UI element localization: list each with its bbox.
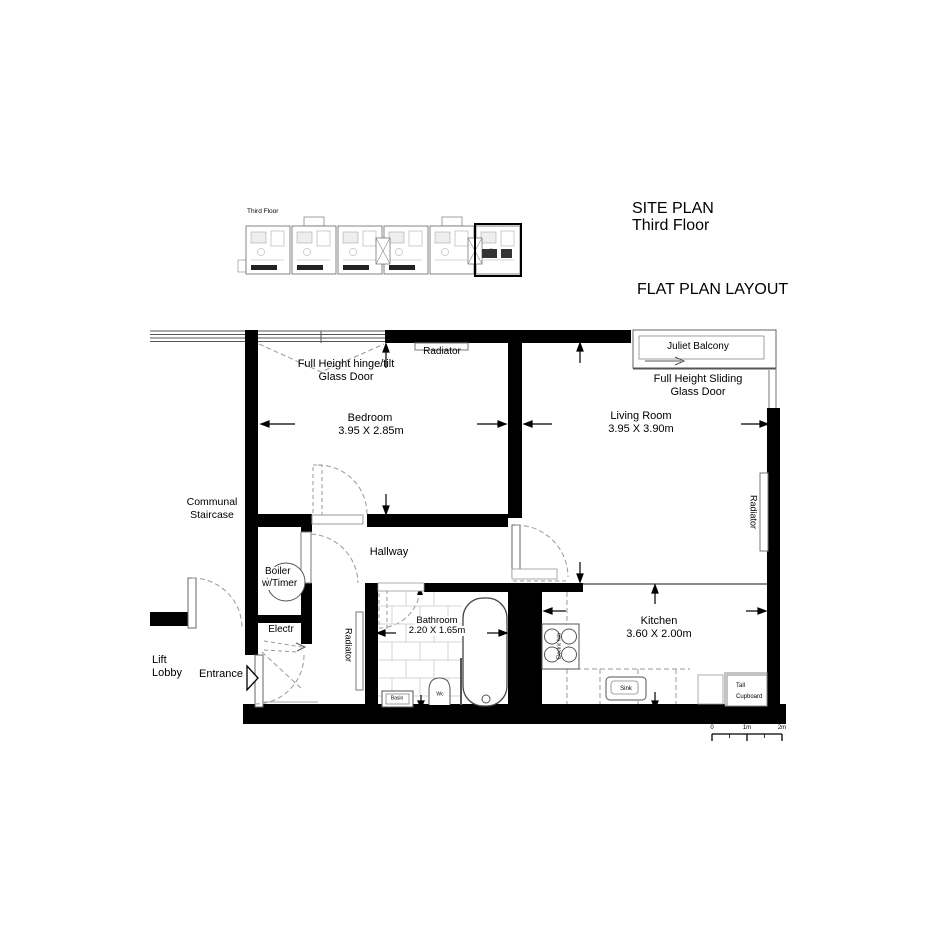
radiator-living-label: Radiator (748, 495, 757, 529)
tall-cupboard-label-line2: Cupboard (736, 694, 762, 700)
floor-plan-page: SITE PLAN Third Floor FLAT PLAN LAYOUT T… (0, 0, 945, 945)
wc-label: Wc (436, 692, 443, 697)
communal-staircase-door (188, 578, 242, 628)
sliding-door-label-line2: Glass Door (670, 387, 725, 399)
hinge-door-label-line1: Full Height hinge/tilt (298, 359, 395, 371)
stair-core-icon (376, 238, 390, 264)
window-exterior-left (150, 331, 245, 342)
scale-bar (712, 734, 782, 741)
sink-label: Sink (620, 686, 632, 692)
tall-cupboard-label-line1: Tall (736, 683, 745, 689)
lift-lobby-label-line2: Lobby (152, 668, 182, 680)
boiler-label-line1: Boiler (263, 567, 293, 578)
boiler-label-line2: w/Timer (260, 579, 299, 590)
electric-hob-label: Electric hob (557, 633, 562, 659)
radiator-top-label: Radiator (423, 347, 461, 358)
thumb-floor-label: Third Floor (247, 209, 278, 216)
scale-label-end: 2m (778, 725, 786, 731)
juliet-balcony-label: Juliet Balcony (667, 342, 729, 353)
bathroom-dims: 2.20 X 1.65m (407, 626, 468, 636)
flat-plan-title: FLAT PLAN LAYOUT (637, 282, 788, 299)
balcony-arrow-icon (645, 357, 684, 365)
kitchen-dims: 3.60 X 2.00m (626, 629, 691, 641)
communal-staircase-label-line2: Staircase (190, 510, 234, 521)
entrance-label: Entrance (199, 669, 243, 681)
site-plan-subtitle: Third Floor (632, 218, 709, 235)
site-plan-title: SITE PLAN (632, 201, 714, 218)
boiler-cupboard-door (301, 532, 358, 583)
communal-staircase-label-line1: Communal (187, 497, 238, 508)
basin-label: Basin (391, 696, 404, 701)
living-room-dims: 3.95 X 3.90m (608, 424, 673, 436)
bedroom-door (312, 465, 367, 524)
hinge-door-label-line2: Glass Door (318, 372, 373, 384)
radiator-bathroom-label: Radiator (343, 628, 352, 662)
entrance-door (255, 641, 318, 707)
bedroom-dims: 3.95 X 2.85m (338, 426, 403, 438)
hallway-label: Hallway (370, 547, 409, 559)
lift-lobby-label-line1: Lift (152, 655, 167, 667)
counter-unit (698, 675, 723, 704)
living-room-door (512, 525, 568, 581)
floor-plan-drawing (0, 0, 945, 945)
scale-label-start: 0 (710, 725, 713, 731)
bathtub (461, 598, 507, 706)
kitchen-label: Kitchen (641, 616, 678, 628)
tall-cupboard (725, 673, 767, 706)
site-plan-thumbnail (238, 217, 521, 276)
bedroom-label: Bedroom (348, 413, 393, 425)
electr-door-swing (264, 641, 305, 652)
living-room-label: Living Room (610, 411, 671, 423)
scale-label-mid: 1m (743, 725, 751, 731)
sliding-door-label-line1: Full Height Sliding (654, 374, 743, 386)
electr-label: Electr (268, 625, 294, 636)
